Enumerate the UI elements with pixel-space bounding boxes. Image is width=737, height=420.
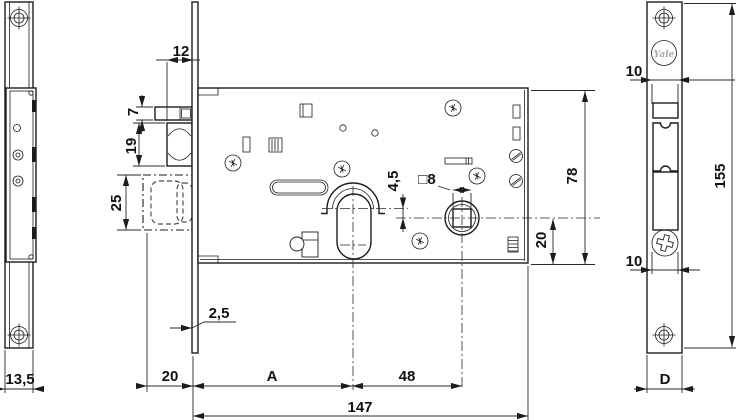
lock-case-edge-view [6,88,36,262]
side-tab [32,147,36,162]
dim-faceplate-height: 155 [712,163,729,188]
deadbolt-cutout [653,123,678,171]
dim-faceplate-width: D [660,371,671,388]
dim-axis-distance: 48 [399,368,416,385]
forend-plate [192,2,198,353]
dim-spindle-square: □8 [418,171,435,188]
side-view: 13,5 [0,2,44,393]
dim-side-width: 13,5 [5,371,34,388]
lower-cutout [653,172,678,230]
dim-slot-width-top: 10 [626,63,643,80]
dim-latch-height: 19 [123,138,140,155]
front-view: 12 7 19 25 2,5 20 A 48 [108,2,600,420]
cam-roller [290,237,304,251]
latch-cutout [653,103,678,118]
dim-case-height: 78 [564,168,581,185]
dim-axis-offset: 4,5 [385,171,402,192]
side-tab [32,227,36,239]
dim-axis-to-bottom: 20 [533,232,550,249]
side-tab [32,100,36,112]
dim-aux-latch-height: 7 [125,108,142,116]
dim-slot-width-bottom: 10 [626,253,643,270]
lock-technical-drawing: 13,5 [0,0,737,420]
yale-logo-text: Yale [654,50,675,60]
dim-deadbolt-throw: 20 [162,368,179,385]
dim-latch-projection: 12 [173,43,190,60]
dim-faceplate-thickness: 2,5 [209,305,230,322]
dim-backset: A [267,368,278,385]
latch-bolt [167,123,192,166]
dim-case-length: 147 [347,399,372,416]
dim-deadbolt-height: 25 [108,195,125,212]
faceplate-view: Yale 10 10 D [626,2,736,393]
side-tab [32,197,36,212]
